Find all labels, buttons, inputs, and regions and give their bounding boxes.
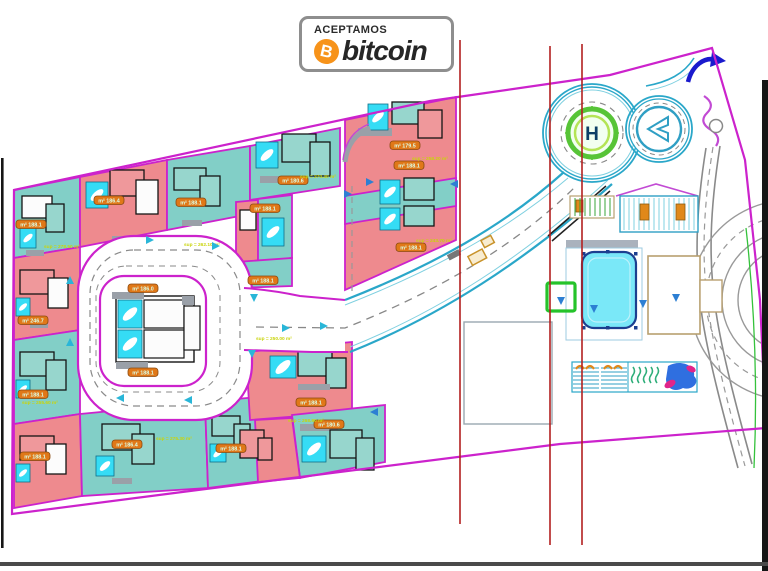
area-note: sup = 250.00 m² xyxy=(256,336,292,342)
house-footprint xyxy=(404,178,434,200)
lot-area-label-text: m² 188.1 xyxy=(400,245,422,251)
bitcoin-coin-icon: B xyxy=(312,36,342,66)
lot-area-label-text: m² 188.1 xyxy=(22,392,44,398)
frame-left xyxy=(1,158,4,548)
amenities xyxy=(547,184,722,392)
area-note: sup = 270.40 m² xyxy=(300,174,336,180)
lot-area-label-text: m² 188.1 xyxy=(252,278,274,284)
court-annex xyxy=(700,280,722,312)
lot-area-label-text: m² 188.1 xyxy=(300,400,322,406)
house-footprint xyxy=(404,206,434,226)
car xyxy=(447,249,461,260)
island-room xyxy=(144,300,184,328)
lot-area-label-text: m² 186.4 xyxy=(98,198,120,204)
frame-bottom xyxy=(0,562,768,566)
lot-area-label-text: m² 188.1 xyxy=(220,446,242,452)
house-footprint xyxy=(326,358,346,388)
gate-post xyxy=(710,120,723,133)
area-note: sup = 243.70 m² xyxy=(416,238,452,244)
house-footprint xyxy=(132,434,154,464)
house-footprint xyxy=(136,180,158,214)
driveway xyxy=(182,220,202,226)
house-footprint xyxy=(46,204,64,232)
area-note: sup = 255.60 m² xyxy=(22,400,58,406)
pool-tick xyxy=(606,250,610,254)
lot-area-label-text: m² 186.4 xyxy=(116,442,138,448)
lot-area-label-text: m² 188.1 xyxy=(398,163,420,169)
island-deck xyxy=(112,292,144,299)
lot-area-label-text: m² 186.0 xyxy=(132,286,154,292)
area-note: sup = 278.50 m² xyxy=(44,244,80,250)
pool-tick xyxy=(606,326,610,330)
lot-area-label-text: m² 179.5 xyxy=(394,143,416,149)
entrance-arrow-icon xyxy=(557,297,565,305)
island-room xyxy=(184,306,200,350)
frame-right xyxy=(762,80,768,571)
area-note: sup = 275.30 m² xyxy=(156,436,192,442)
island-deck xyxy=(182,296,194,305)
house-footprint xyxy=(46,360,66,390)
lot-area-label-text: m² 188.1 xyxy=(180,200,202,206)
house-footprint xyxy=(48,278,68,308)
car xyxy=(468,249,487,265)
area-note: sup = 268.90 m² xyxy=(288,418,324,424)
central-island-buildings xyxy=(112,292,200,369)
house-footprint xyxy=(258,438,272,460)
house-footprint xyxy=(310,142,330,176)
site-plan-page: ACEPTAMOS B bitcoin xyxy=(0,0,768,571)
helipad-letter: H xyxy=(585,124,599,145)
house-footprint xyxy=(240,210,256,230)
house-footprint xyxy=(418,110,442,138)
pool-tick xyxy=(634,252,638,256)
bitcoin-banner: ACEPTAMOS B bitcoin xyxy=(299,16,454,72)
island-room xyxy=(144,330,184,358)
house-footprint xyxy=(356,438,374,470)
pool-tick xyxy=(634,326,638,330)
driveway xyxy=(112,478,132,484)
green-boundary-line xyxy=(746,228,756,468)
car xyxy=(481,235,494,247)
swimming-pool xyxy=(582,252,636,328)
driveway xyxy=(26,250,44,256)
lot-area-label-text: m² 246.7 xyxy=(22,318,44,324)
lot-area-label-text: m² 188.1 xyxy=(132,370,154,376)
access-road xyxy=(242,288,348,352)
bitcoin-brand-text: bitcoin xyxy=(342,37,427,65)
plaza-rectangle xyxy=(464,322,552,424)
parked-car xyxy=(640,204,649,220)
lot-area-label-text: m² 188.1 xyxy=(254,206,276,212)
lot-area-label-text: m² 188.1 xyxy=(24,454,46,460)
parked-car xyxy=(676,204,685,220)
helipad-cluster: H xyxy=(543,84,692,182)
lot-area-label-text: m² 188.1 xyxy=(20,222,42,228)
area-note: sup = 258.20 m² xyxy=(412,156,448,162)
site-plan-drawing: H xyxy=(0,0,768,571)
pool-deck-edge xyxy=(566,240,638,248)
driveway xyxy=(298,384,330,390)
roof-line xyxy=(616,184,698,196)
